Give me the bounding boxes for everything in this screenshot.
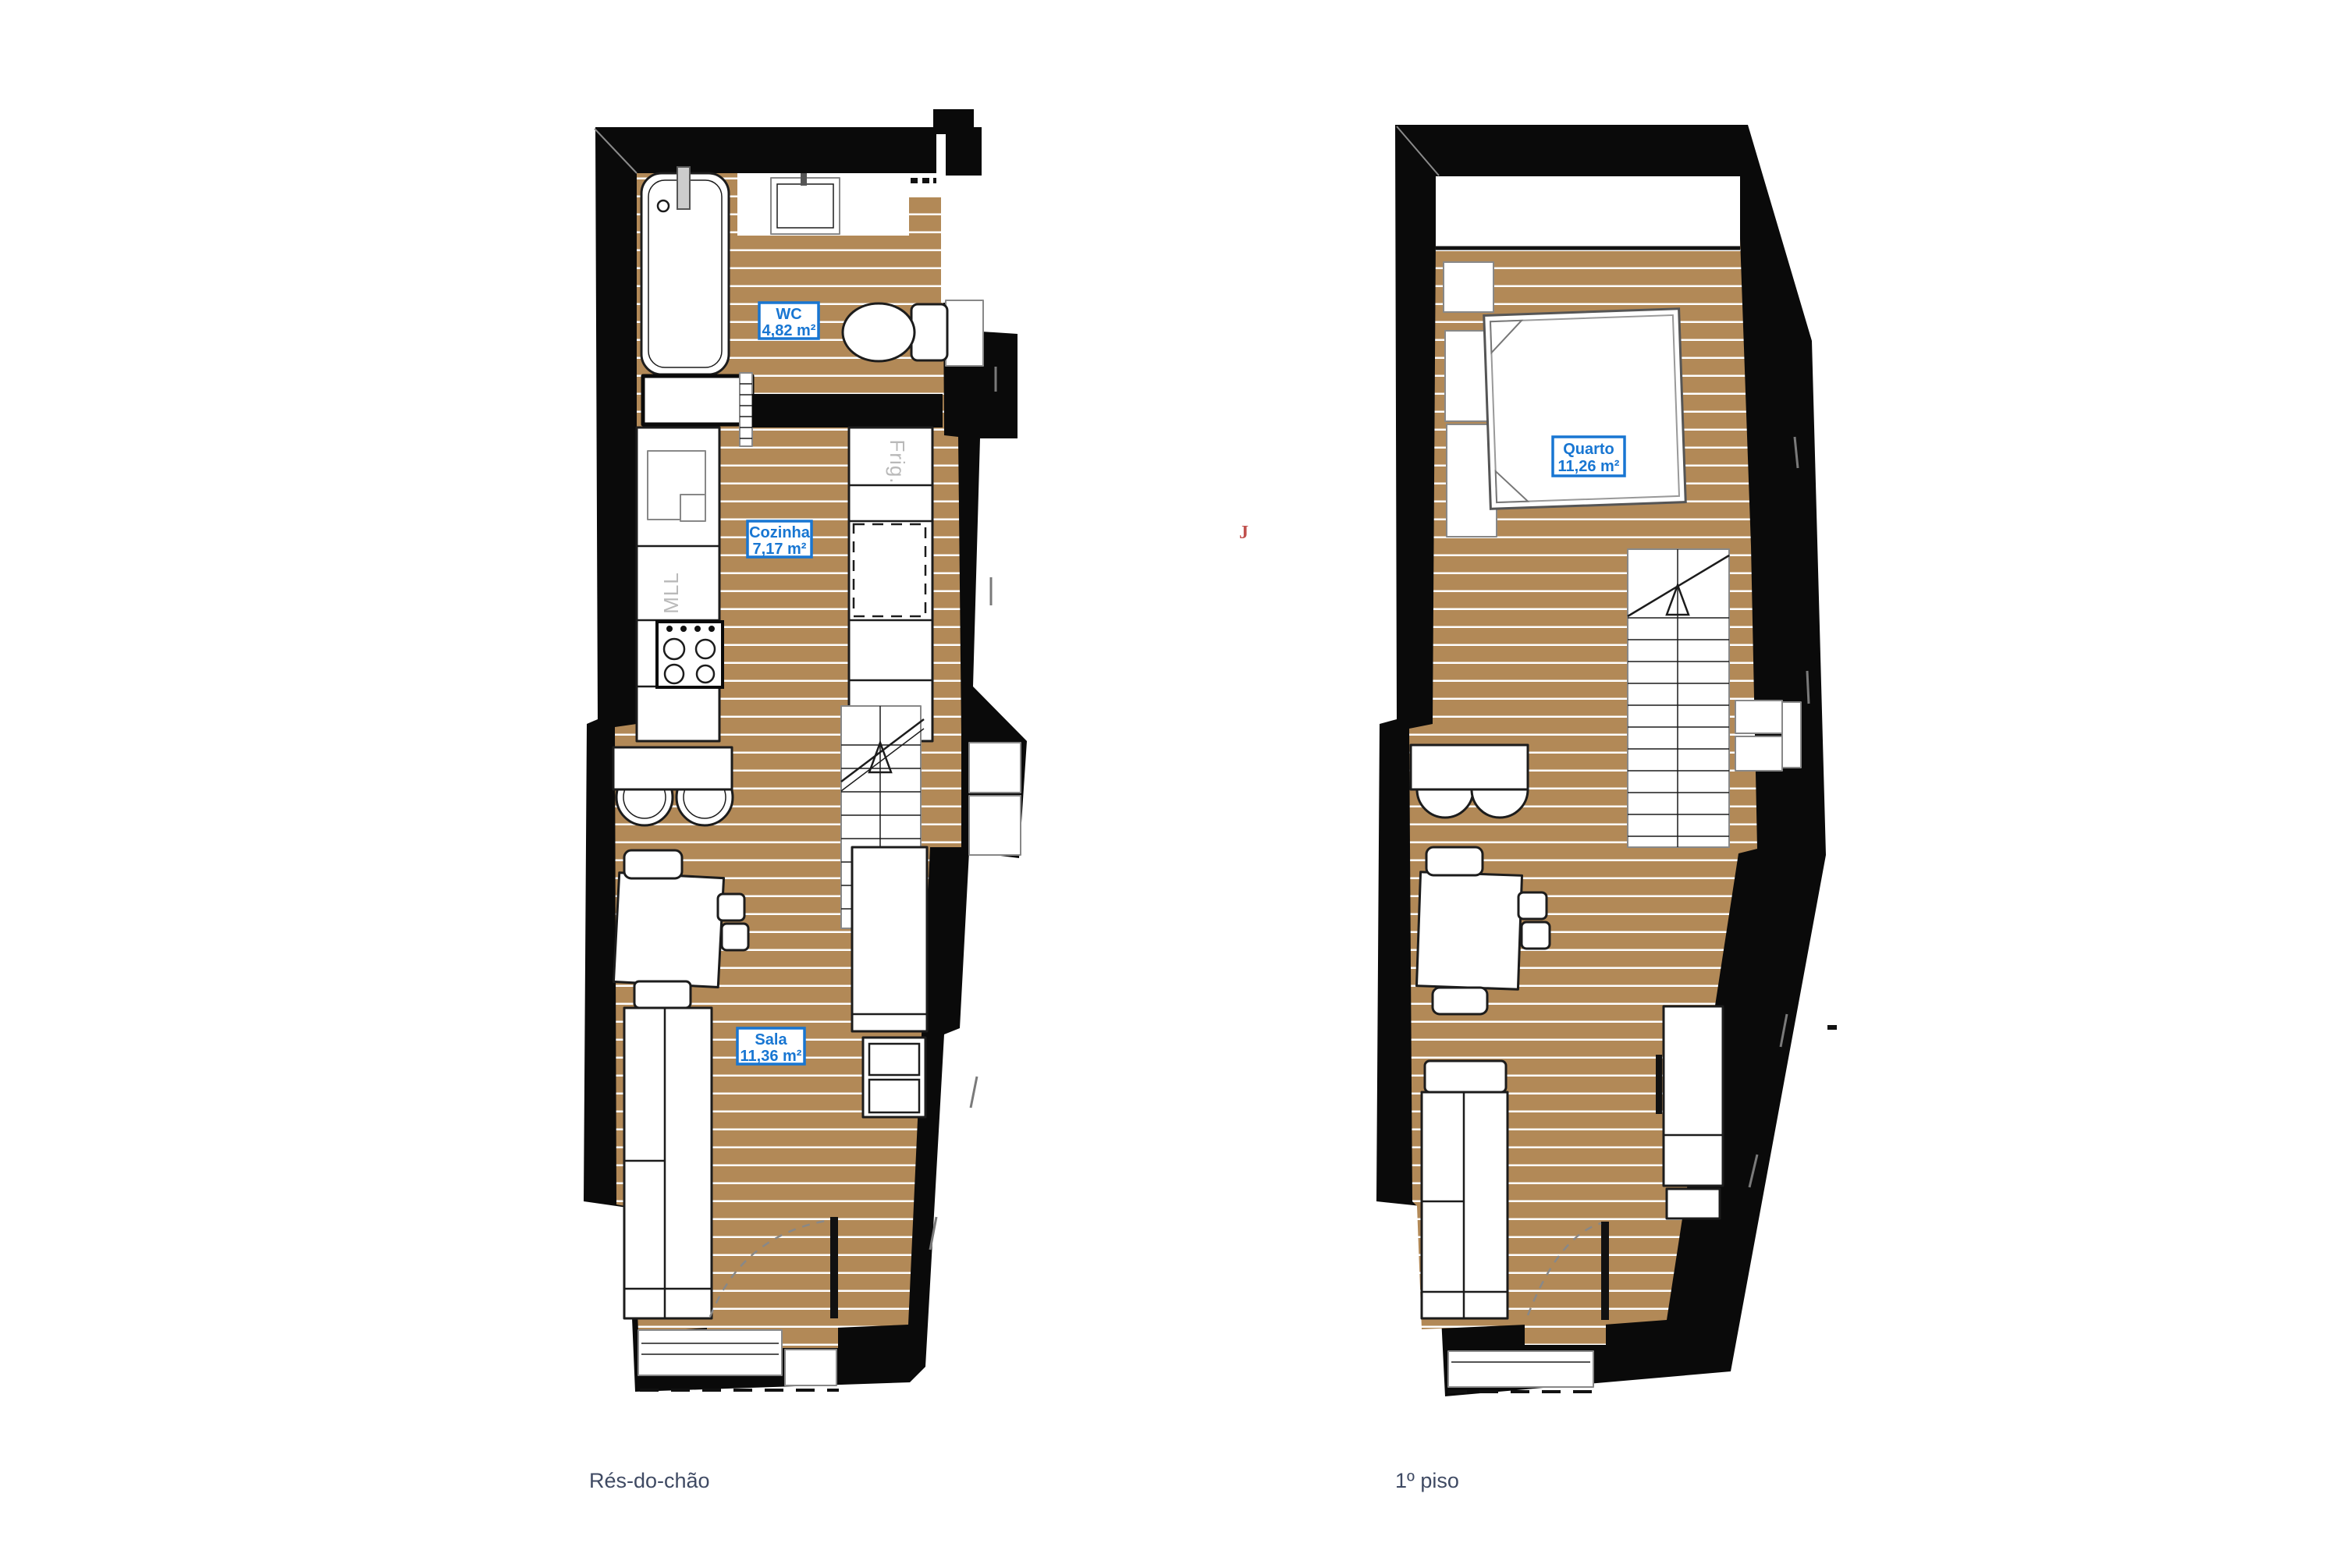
kitchen-area: 7,17 m² <box>753 541 807 558</box>
basin-shelf-2 <box>1411 745 1528 789</box>
quarto-label: Quarto <box>1563 441 1614 458</box>
sofa-armrest-2 <box>1425 1061 1506 1092</box>
entrance-threshold-2 <box>1448 1351 1604 1392</box>
floorplan-drawing: WC 4,82 m² MLL <box>0 0 2344 1568</box>
chimney-flue-slot <box>936 134 946 191</box>
bathtub <box>641 167 729 374</box>
quarto-area: 11,26 m² <box>1558 458 1620 475</box>
wc-right-niche <box>941 176 983 303</box>
stray-black-dash <box>1827 1025 1837 1030</box>
first-floor-plan: Quarto 11,26 m² <box>1376 125 1826 1396</box>
room-label-kitchen: Cozinha 7,17 m² <box>748 521 812 558</box>
fridge-label: Frig. <box>886 440 909 484</box>
kitchen-sink-drainer <box>680 495 705 521</box>
wc-kitchen-divider-wall <box>752 394 943 427</box>
door-leaf-2 <box>1601 1222 1609 1320</box>
wc-label: WC <box>776 306 801 323</box>
wc-area: 4,82 m² <box>762 322 816 339</box>
stove <box>657 622 723 687</box>
stray-red-mark: J <box>1239 523 1248 543</box>
dining-table-group-2 <box>1416 872 1522 989</box>
first-floor-caption: 1º piso <box>1395 1469 1459 1492</box>
sofa-2 <box>1422 1061 1508 1318</box>
kitchen-left-counter: MLL <box>637 427 723 741</box>
chair-right-3 <box>1518 892 1547 919</box>
chair-right-2 <box>722 924 748 950</box>
room-label-quarto: Quarto 11,26 m² <box>1553 437 1625 476</box>
chair-right-1 <box>718 894 744 921</box>
stairs-window <box>969 743 1021 855</box>
double-bed <box>1484 309 1686 509</box>
sink-faucet <box>801 173 807 186</box>
sofa <box>624 981 712 1318</box>
ground-floor-caption: Rés-do-chão <box>589 1469 710 1492</box>
sala-cabinet <box>863 1038 925 1117</box>
stairs-window-2 <box>1735 701 1801 771</box>
chair-bottom-2 <box>1433 988 1487 1014</box>
sala-area: 11,36 m² <box>740 1048 802 1065</box>
pocket-door <box>740 373 752 446</box>
toilet <box>843 300 983 366</box>
sala-label: Sala <box>755 1031 787 1048</box>
chair-top-2 <box>1426 847 1483 875</box>
bedroom-cabinet <box>1444 262 1493 312</box>
chair-top <box>624 850 682 878</box>
kitchen-label: Cozinha <box>749 524 811 541</box>
chair-right-4 <box>1522 922 1550 949</box>
flue-slot-2 <box>1784 134 1795 189</box>
closet-door-stub <box>1656 1055 1662 1114</box>
basin-shelf <box>613 747 732 789</box>
door-leaf <box>830 1217 838 1318</box>
dishwasher-label: MLL <box>659 572 683 614</box>
floorplan-sheet: WC 4,82 m² MLL <box>0 0 2344 1568</box>
kitchen-right-counter: Frig. <box>849 427 932 741</box>
room-label-sala: Sala 11,36 m² <box>737 1028 804 1065</box>
entrance-floor-patch-2 <box>1525 1314 1606 1345</box>
bathtub-faucet <box>677 167 690 209</box>
wc-sink-counter <box>737 173 909 236</box>
sala-closet <box>852 847 927 1117</box>
sofa-armrest <box>634 981 691 1008</box>
room-label-wc: WC 4,82 m² <box>759 303 819 339</box>
bedroom-window-niche <box>1436 176 1740 248</box>
dining-table-group <box>613 873 723 988</box>
built-in-appliance <box>854 524 925 616</box>
wc-cabinet <box>643 376 752 424</box>
ground-floor-plan: WC 4,82 m² MLL <box>584 109 1027 1392</box>
upper-closet <box>1656 1006 1723 1219</box>
